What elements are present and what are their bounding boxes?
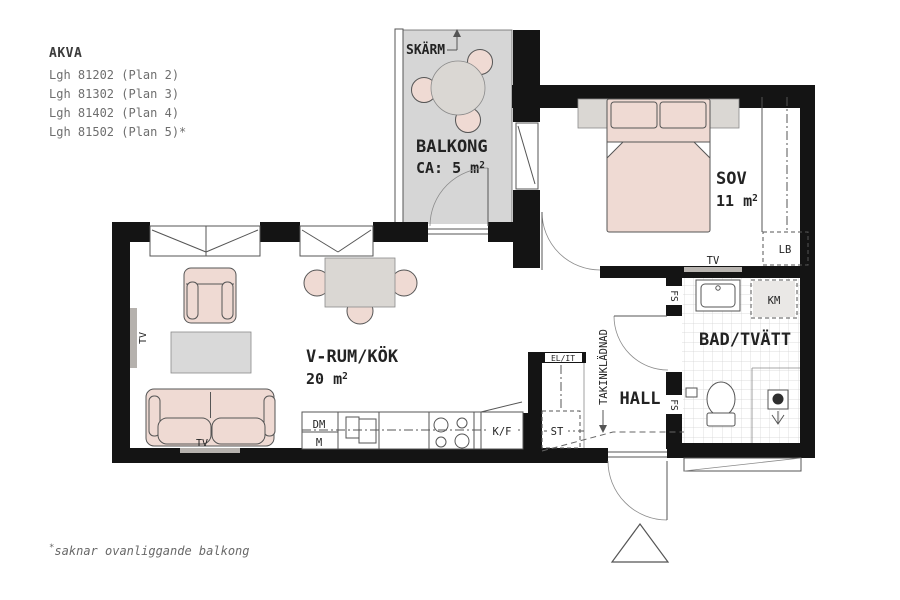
wall [513,190,540,268]
fs-label-lower: FS [668,399,679,411]
balcony-floor [398,30,512,228]
bathroom-door-arc [614,316,668,370]
wall [112,448,535,463]
sov-label: SOV [716,169,747,189]
balcony-table [431,61,485,115]
entry-threshold [608,449,667,462]
stove-burner [436,437,446,447]
bed-pillow [660,102,706,128]
tv-bench-living [180,448,240,453]
sink [359,419,376,443]
stove-burner [455,434,469,448]
toilet-tank [707,413,735,426]
wall [260,222,300,242]
armchair-arm [222,282,233,319]
wall [668,443,815,458]
wall [112,222,130,463]
dining-table [325,258,395,307]
bedroom: LB TV SOV 11 m2 [542,97,808,272]
km-label: KM [768,295,781,307]
vrum-label: V-RUM/KÖK [306,345,399,367]
wall [373,222,428,242]
st-label: ST [551,426,564,438]
bedroom-door-arc [542,212,600,270]
wall [523,413,542,448]
nightstand [709,99,739,128]
dm-label: DM [313,419,326,431]
floorplan-page: AKVA Lgh 81202 (Plan 2) Lgh 81302 (Plan … [0,0,900,600]
floor-drain-cap [773,394,784,405]
takinkladnad-label: TAKINKLÄDNAD [597,329,610,405]
bedroom-area-label: 11 m2 [716,192,758,210]
armchair-arm [187,282,198,319]
entrance-triangle-marker [612,524,668,562]
washbasin-bowl [701,284,735,307]
lb-label: LB [779,244,792,256]
tv-bench-wall [130,308,137,368]
m-label: M [316,437,322,449]
stove-burner [457,418,467,428]
wall [666,372,682,458]
bad-tvatt-label: BAD/TVÄTT [699,328,791,350]
kf-label: K/F [493,426,512,438]
living-area-label: 20 m2 [306,370,348,388]
tv-bench-bedroom [684,267,742,272]
sofa-cushion [212,418,265,444]
balcony-label: BALKONG [416,137,488,157]
tv-label-wall: TV [138,332,149,344]
wall [513,30,540,122]
entry-door-arc [608,461,667,520]
balcony-screen [395,29,403,228]
ceiling-boundary-line [481,402,522,412]
balcony-area-label: CA: 5 m2 [416,159,485,177]
tv-label-bedroom: TV [707,255,720,267]
toilet-paper-holder [686,388,697,397]
takinkladnad-arrowhead [599,425,607,433]
sofa-armrest [264,396,275,436]
bed-pillow [611,102,657,128]
skarm-label: SKÄRM [406,42,445,58]
kitchen: DM M K/F [302,402,523,449]
hall-label: HALL [620,389,661,409]
sink [346,417,359,438]
floor-plan: SKÄRM BALKONG CA: 5 m2 LB [0,0,900,600]
balcony-door-threshold [428,224,488,240]
tv-label-sofa: TV [196,438,208,449]
elit-label: EL/IT [551,354,575,363]
fs-label-upper: FS [668,290,679,302]
toilet-bowl [707,382,735,416]
nightstand [578,99,608,128]
coffee-table [171,332,251,373]
